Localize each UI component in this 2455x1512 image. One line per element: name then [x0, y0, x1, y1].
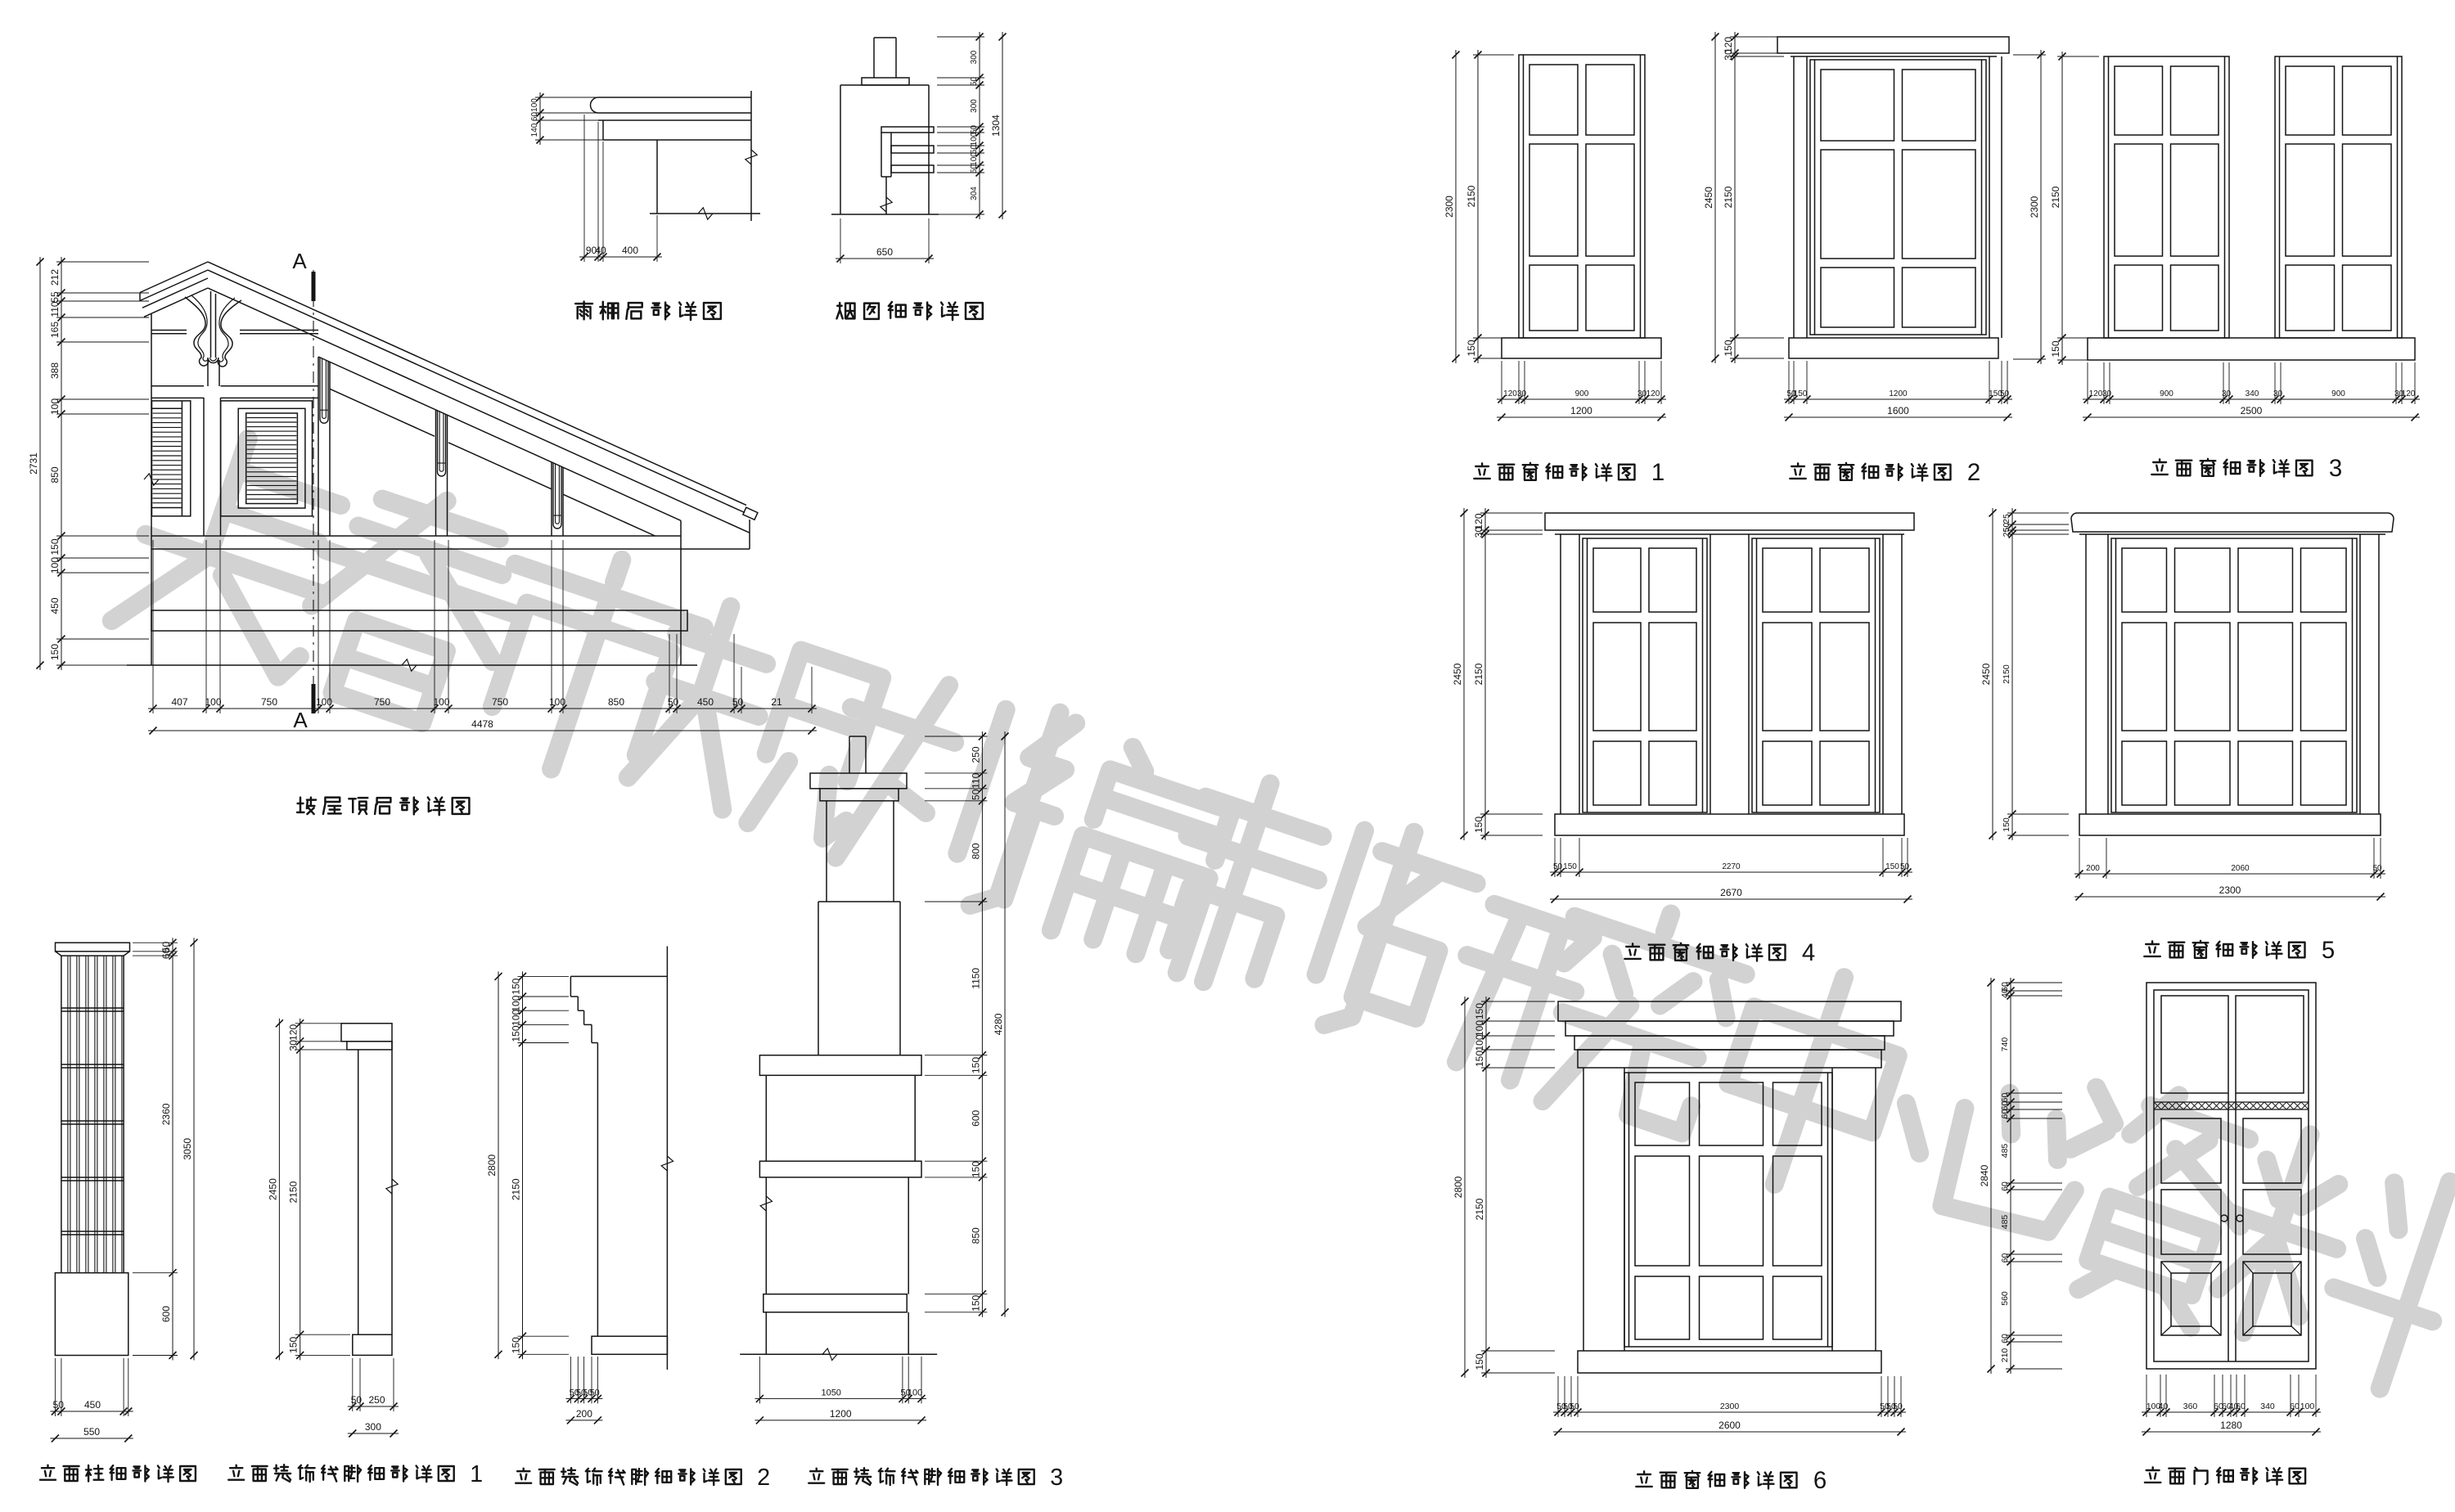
svg-text:800: 800	[970, 843, 981, 859]
svg-text:900: 900	[2160, 389, 2173, 398]
svg-text:150: 150	[511, 1337, 522, 1353]
svg-text:2500: 2500	[2241, 405, 2263, 416]
svg-text:55: 55	[49, 291, 61, 303]
svg-text:150: 150	[511, 1025, 522, 1042]
svg-text:50: 50	[1553, 862, 1563, 871]
svg-text:30: 30	[2102, 389, 2112, 398]
svg-text:6: 6	[1813, 1467, 1827, 1494]
svg-text:750: 750	[492, 696, 508, 708]
svg-text:1200: 1200	[830, 1408, 852, 1420]
svg-text:2600: 2600	[1718, 1420, 1741, 1431]
svg-text:25: 25	[2002, 528, 2011, 538]
svg-text:1280: 1280	[2220, 1420, 2242, 1431]
svg-text:2060: 2060	[2231, 864, 2250, 873]
svg-text:2800: 2800	[1453, 1176, 1464, 1198]
svg-text:60: 60	[2290, 1402, 2300, 1411]
svg-text:50: 50	[2372, 864, 2382, 873]
svg-text:100: 100	[549, 696, 565, 708]
svg-text:30: 30	[1723, 49, 1734, 61]
svg-text:110: 110	[970, 772, 981, 788]
svg-text:600: 600	[970, 1109, 981, 1126]
svg-text:150: 150	[1474, 1353, 1485, 1370]
svg-text:450: 450	[49, 597, 61, 614]
svg-text:50: 50	[970, 164, 979, 174]
svg-text:2150: 2150	[288, 1181, 300, 1203]
svg-text:4: 4	[1802, 939, 1815, 966]
svg-text:100: 100	[530, 98, 539, 112]
svg-text:30: 30	[1517, 389, 1527, 398]
svg-text:2800: 2800	[486, 1154, 498, 1177]
svg-text:750: 750	[261, 696, 277, 708]
svg-text:150: 150	[970, 1057, 981, 1073]
svg-text:25: 25	[2002, 514, 2011, 524]
svg-text:600: 600	[160, 1306, 172, 1322]
svg-text:2: 2	[1967, 459, 1980, 486]
svg-text:1600: 1600	[1887, 405, 1909, 416]
svg-text:750: 750	[374, 696, 390, 708]
svg-text:30: 30	[2222, 389, 2232, 398]
svg-text:2270: 2270	[1722, 862, 1741, 871]
svg-text:1150: 1150	[970, 968, 981, 989]
svg-text:50: 50	[53, 1399, 65, 1411]
svg-text:900: 900	[2331, 389, 2345, 398]
svg-text:2150: 2150	[1466, 185, 1477, 207]
svg-text:100: 100	[970, 132, 979, 146]
svg-text:200: 200	[576, 1408, 592, 1420]
svg-text:2300: 2300	[2219, 884, 2241, 896]
svg-text:100: 100	[433, 696, 449, 708]
svg-text:100: 100	[511, 1009, 522, 1025]
svg-text:4478: 4478	[471, 718, 493, 730]
svg-text:650: 650	[876, 246, 893, 258]
svg-text:450: 450	[84, 1399, 101, 1411]
svg-text:388: 388	[49, 362, 61, 379]
svg-text:A: A	[293, 708, 308, 732]
svg-text:30: 30	[288, 1040, 300, 1051]
svg-text:1: 1	[1651, 459, 1664, 486]
svg-text:2360: 2360	[160, 1103, 172, 1125]
svg-text:120: 120	[2089, 389, 2103, 398]
svg-text:2450: 2450	[1980, 663, 1992, 685]
svg-text:140: 140	[530, 123, 539, 137]
svg-text:450: 450	[697, 696, 714, 708]
svg-text:150: 150	[1474, 1051, 1485, 1067]
svg-text:3: 3	[2329, 455, 2342, 482]
svg-text:60: 60	[2000, 1101, 2010, 1111]
svg-text:150: 150	[49, 644, 61, 660]
svg-text:300: 300	[970, 99, 979, 113]
svg-text:150: 150	[970, 1161, 981, 1177]
svg-text:40: 40	[595, 245, 606, 256]
svg-text:100: 100	[205, 696, 221, 708]
svg-text:2300: 2300	[1444, 196, 1455, 218]
svg-text:60: 60	[160, 947, 172, 959]
svg-text:60: 60	[2000, 1181, 2010, 1191]
svg-text:212: 212	[49, 269, 61, 286]
svg-text:2150: 2150	[2002, 664, 2011, 684]
svg-text:165: 165	[49, 322, 61, 338]
svg-text:560: 560	[2000, 1291, 2010, 1306]
svg-text:60: 60	[2000, 1109, 2010, 1119]
svg-text:50: 50	[732, 696, 744, 708]
svg-text:120: 120	[1503, 389, 1517, 398]
svg-text:3050: 3050	[182, 1138, 193, 1160]
svg-text:1200: 1200	[1889, 389, 1908, 398]
svg-text:1050: 1050	[821, 1388, 840, 1397]
svg-text:60: 60	[2236, 1402, 2246, 1411]
svg-text:150: 150	[2050, 340, 2061, 357]
svg-text:150: 150	[511, 978, 522, 994]
svg-text:2450: 2450	[267, 1178, 278, 1200]
svg-text:60: 60	[2000, 1334, 2010, 1343]
svg-text:100: 100	[49, 398, 61, 415]
svg-text:2670: 2670	[1720, 887, 1742, 898]
svg-text:30: 30	[1473, 527, 1484, 538]
svg-text:50: 50	[1570, 1402, 1579, 1411]
svg-text:2450: 2450	[1452, 663, 1463, 685]
svg-text:2150: 2150	[2050, 186, 2061, 208]
svg-text:50: 50	[1900, 862, 1910, 871]
svg-text:60: 60	[2000, 1253, 2010, 1263]
svg-text:740: 740	[2000, 1037, 2010, 1052]
svg-text:360: 360	[2183, 1402, 2198, 1411]
svg-text:340: 340	[2246, 389, 2259, 398]
svg-text:150: 150	[1563, 862, 1577, 871]
svg-text:1200: 1200	[1570, 405, 1592, 416]
svg-text:200: 200	[2086, 864, 2100, 873]
svg-text:2150: 2150	[1474, 1198, 1485, 1220]
svg-text:1: 1	[470, 1461, 483, 1487]
svg-text:850: 850	[49, 466, 61, 483]
svg-text:2731: 2731	[28, 452, 39, 475]
svg-text:100: 100	[908, 1388, 922, 1397]
svg-text:150: 150	[2002, 817, 2011, 832]
svg-text:2150: 2150	[1723, 186, 1734, 208]
svg-text:2150: 2150	[511, 1178, 522, 1200]
svg-text:2450: 2450	[1703, 187, 1714, 209]
svg-text:150: 150	[1473, 817, 1484, 833]
svg-text:100: 100	[1474, 1020, 1485, 1037]
svg-text:485: 485	[2000, 1144, 2010, 1159]
svg-text:300: 300	[365, 1421, 381, 1433]
svg-text:850: 850	[608, 696, 624, 708]
svg-text:150: 150	[1466, 340, 1477, 356]
svg-text:5: 5	[2322, 937, 2335, 964]
svg-text:304: 304	[970, 187, 979, 200]
svg-text:40: 40	[2159, 1402, 2169, 1411]
svg-text:300: 300	[970, 50, 979, 64]
svg-text:60: 60	[530, 112, 539, 122]
svg-text:407: 407	[171, 696, 187, 708]
svg-text:40: 40	[2000, 988, 2010, 998]
svg-text:550: 550	[83, 1426, 100, 1438]
svg-text:900: 900	[1575, 389, 1589, 398]
svg-text:150: 150	[1723, 340, 1734, 356]
svg-text:60: 60	[2000, 1093, 2010, 1103]
svg-text:2150: 2150	[1473, 663, 1484, 685]
svg-text:4280: 4280	[993, 1013, 1004, 1035]
svg-text:250: 250	[368, 1394, 385, 1406]
svg-text:50: 50	[970, 789, 981, 800]
svg-text:50: 50	[1893, 1402, 1903, 1411]
svg-text:110: 110	[49, 301, 61, 317]
svg-text:30: 30	[2273, 389, 2283, 398]
svg-text:485: 485	[2000, 1215, 2010, 1230]
svg-text:3: 3	[1050, 1465, 1063, 1491]
svg-text:150: 150	[1885, 862, 1899, 871]
svg-text:150: 150	[49, 538, 61, 555]
svg-text:100: 100	[316, 696, 332, 708]
svg-text:150: 150	[1794, 389, 1808, 398]
svg-text:50: 50	[590, 1388, 600, 1397]
svg-text:50: 50	[668, 696, 679, 708]
svg-text:150: 150	[1474, 1003, 1485, 1019]
svg-text:100: 100	[49, 557, 61, 574]
svg-text:50: 50	[2000, 389, 2010, 398]
svg-text:120: 120	[288, 1024, 300, 1040]
svg-text:50: 50	[970, 77, 979, 87]
svg-text:50: 50	[351, 1394, 363, 1406]
svg-text:850: 850	[970, 1227, 981, 1244]
svg-text:21: 21	[771, 696, 782, 708]
svg-text:250: 250	[970, 746, 981, 763]
svg-text:100: 100	[511, 995, 522, 1011]
svg-text:120: 120	[1646, 389, 1660, 398]
svg-text:2300: 2300	[2029, 196, 2040, 218]
svg-text:150: 150	[288, 1336, 300, 1352]
svg-text:340: 340	[2260, 1402, 2275, 1411]
svg-text:400: 400	[622, 245, 638, 256]
svg-text:2840: 2840	[1979, 1164, 1990, 1186]
svg-text:100: 100	[970, 152, 979, 166]
svg-text:A: A	[292, 249, 307, 273]
svg-text:100: 100	[1474, 1034, 1485, 1051]
svg-text:150: 150	[970, 1294, 981, 1311]
svg-text:2300: 2300	[1720, 1402, 1740, 1411]
svg-text:210: 210	[2000, 1348, 2010, 1363]
svg-text:120: 120	[2402, 389, 2416, 398]
svg-text:1304: 1304	[990, 115, 1002, 137]
svg-text:2: 2	[757, 1465, 770, 1491]
svg-text:100: 100	[2300, 1402, 2315, 1411]
